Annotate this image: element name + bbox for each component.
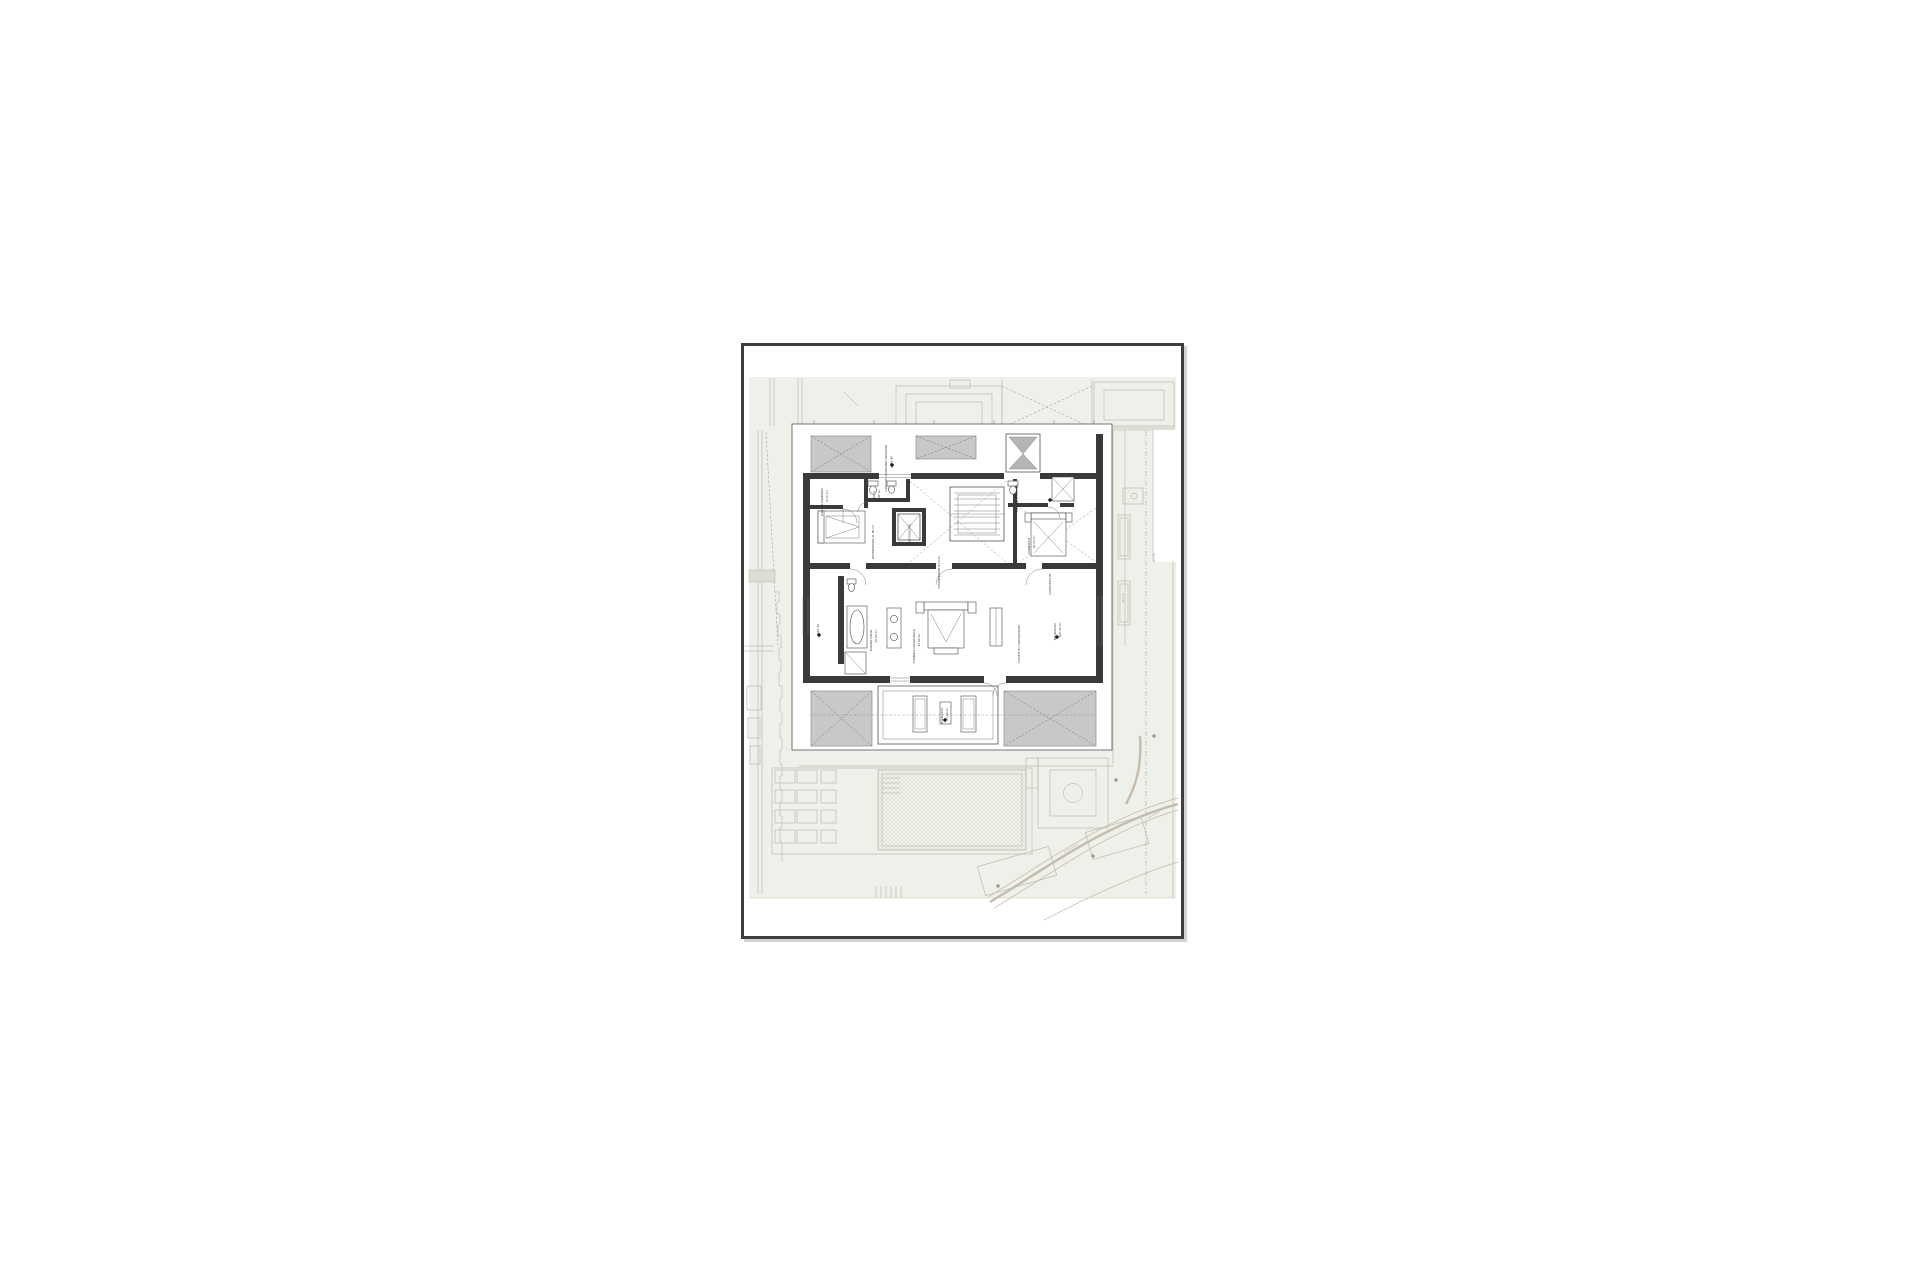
pool — [878, 770, 1026, 850]
svg-text:WC 1: WC 1 — [872, 491, 876, 499]
screenshot-canvas: COPERT. GIARDINO INVERNO+315.90CABINA AR… — [0, 0, 1920, 1280]
drawing-sheet: COPERT. GIARDINO INVERNO+315.90CABINA AR… — [741, 343, 1184, 939]
svg-text:BAGNO PADR.: BAGNO PADR. — [869, 629, 873, 651]
bed-camera-b — [1025, 513, 1072, 556]
svg-text:31.60 m²: 31.60 m² — [917, 633, 921, 646]
svg-text:102.40 m²: 102.40 m² — [1058, 623, 1062, 638]
floor-plan-drawing: COPERT. GIARDINO INVERNO+315.90CABINA AR… — [744, 346, 1181, 936]
svg-text:316.40: 316.40 — [1152, 553, 1156, 563]
bed-camera-c — [818, 511, 865, 543]
svg-text:ASCENSORE: ASCENSORE — [908, 524, 912, 544]
svg-text:COPERT. GIARDINO INVERNO: COPERT. GIARDINO INVERNO — [884, 444, 888, 491]
svg-text:DISIMPEGNO 11.80 m²: DISIMPEGNO 11.80 m² — [871, 525, 875, 560]
svg-text:315.20: 315.20 — [1121, 593, 1125, 603]
staircase — [950, 487, 1004, 541]
svg-text:DISIMPEGNO 5.10 m²: DISIMPEGNO 5.10 m² — [937, 556, 941, 589]
svg-text:16.10 m²: 16.10 m² — [1032, 535, 1036, 548]
svg-text:CAMERA B: CAMERA B — [1027, 538, 1031, 555]
svg-text:CABINA ARMADIO: CABINA ARMADIO — [820, 488, 824, 516]
svg-text:TERRAZZA: TERRAZZA — [940, 707, 944, 725]
svg-text:BAGNO B 4.20 m²: BAGNO B 4.20 m² — [1015, 485, 1019, 512]
svg-text:12.60 m²: 12.60 m² — [874, 629, 878, 642]
svg-text:VUOTO SU SOGGIORNO: VUOTO SU SOGGIORNO — [1017, 624, 1021, 663]
svg-text:9.10 m²: 9.10 m² — [825, 490, 829, 501]
svg-text:2.90 m²: 2.90 m² — [877, 489, 881, 500]
svg-text:RIPOSTIGLIO: RIPOSTIGLIO — [1048, 573, 1052, 594]
svg-text:CAMERA PADRONALE: CAMERA PADRONALE — [912, 629, 916, 663]
